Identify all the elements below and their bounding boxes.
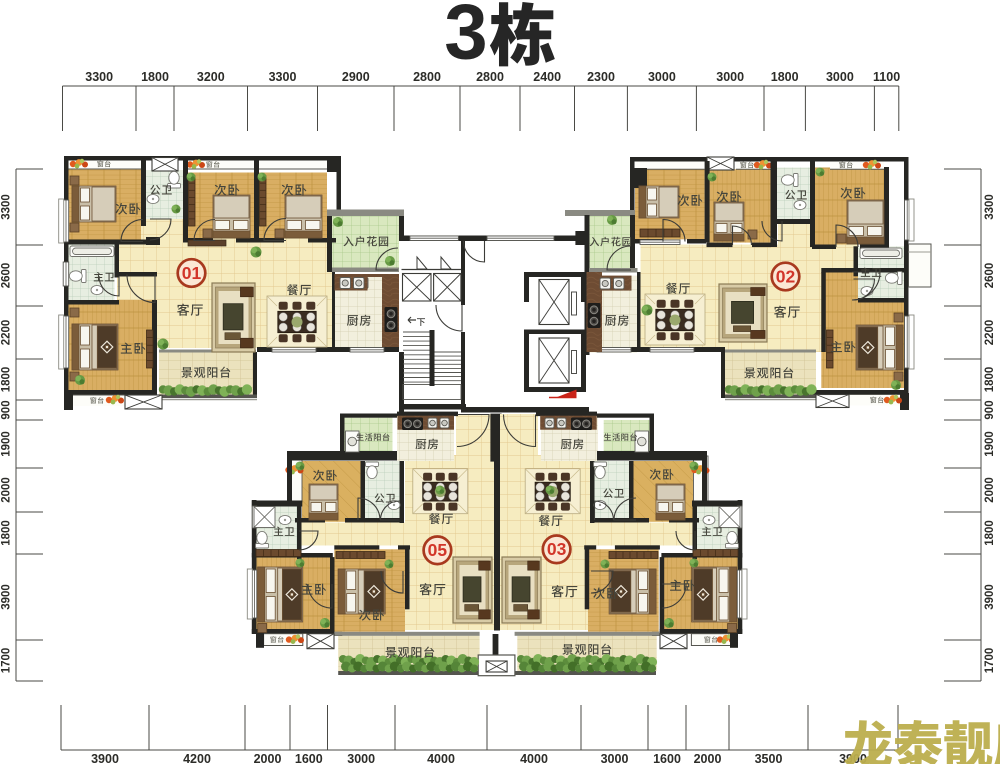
svg-text:900: 900 bbox=[1, 400, 13, 419]
svg-text:1800: 1800 bbox=[1, 367, 13, 393]
svg-text:3300: 3300 bbox=[1, 194, 13, 220]
svg-text:2600: 2600 bbox=[1, 263, 13, 289]
svg-text:1100: 1100 bbox=[873, 70, 900, 84]
svg-text:2800: 2800 bbox=[413, 70, 441, 84]
svg-text:4000: 4000 bbox=[520, 752, 548, 764]
svg-text:3000: 3000 bbox=[347, 752, 375, 764]
svg-text:2200: 2200 bbox=[984, 320, 996, 346]
svg-text:3300: 3300 bbox=[85, 70, 113, 84]
svg-text:1700: 1700 bbox=[1, 648, 13, 674]
svg-text:3000: 3000 bbox=[648, 70, 676, 84]
svg-text:1700: 1700 bbox=[984, 648, 996, 674]
svg-text:3000: 3000 bbox=[826, 70, 854, 84]
svg-text:1800: 1800 bbox=[984, 520, 996, 546]
svg-text:3300: 3300 bbox=[984, 194, 996, 220]
svg-text:1800: 1800 bbox=[1, 520, 13, 546]
svg-text:2200: 2200 bbox=[1, 320, 13, 346]
svg-text:3200: 3200 bbox=[197, 70, 225, 84]
svg-text:1900: 1900 bbox=[984, 431, 996, 457]
svg-text:3: 3 bbox=[444, 0, 487, 76]
svg-text:1800: 1800 bbox=[984, 367, 996, 393]
svg-text:3000: 3000 bbox=[716, 70, 744, 84]
svg-text:4200: 4200 bbox=[183, 752, 211, 764]
svg-text:2300: 2300 bbox=[587, 70, 615, 84]
svg-text:2000: 2000 bbox=[1, 477, 13, 503]
svg-text:4000: 4000 bbox=[427, 752, 455, 764]
svg-text:2000: 2000 bbox=[254, 752, 282, 764]
svg-text:3900: 3900 bbox=[984, 584, 996, 610]
svg-text:02: 02 bbox=[776, 266, 796, 286]
svg-text:3000: 3000 bbox=[601, 752, 629, 764]
svg-text:03: 03 bbox=[547, 539, 567, 559]
svg-text:1800: 1800 bbox=[771, 70, 799, 84]
svg-text:01: 01 bbox=[182, 263, 202, 283]
svg-text:2400: 2400 bbox=[533, 70, 561, 84]
svg-text:1800: 1800 bbox=[141, 70, 169, 84]
svg-text:2000: 2000 bbox=[984, 477, 996, 503]
svg-text:2600: 2600 bbox=[984, 263, 996, 289]
svg-text:3900: 3900 bbox=[1, 584, 13, 610]
svg-text:1600: 1600 bbox=[653, 752, 681, 764]
svg-text:2800: 2800 bbox=[476, 70, 504, 84]
svg-text:1600: 1600 bbox=[295, 752, 323, 764]
svg-text:05: 05 bbox=[428, 540, 448, 560]
svg-text:3900: 3900 bbox=[91, 752, 119, 764]
svg-text:900: 900 bbox=[984, 400, 996, 419]
svg-text:1900: 1900 bbox=[1, 431, 13, 457]
svg-text:3300: 3300 bbox=[269, 70, 297, 84]
svg-text:3500: 3500 bbox=[755, 752, 783, 764]
svg-text:2900: 2900 bbox=[342, 70, 370, 84]
svg-text:2000: 2000 bbox=[694, 752, 722, 764]
